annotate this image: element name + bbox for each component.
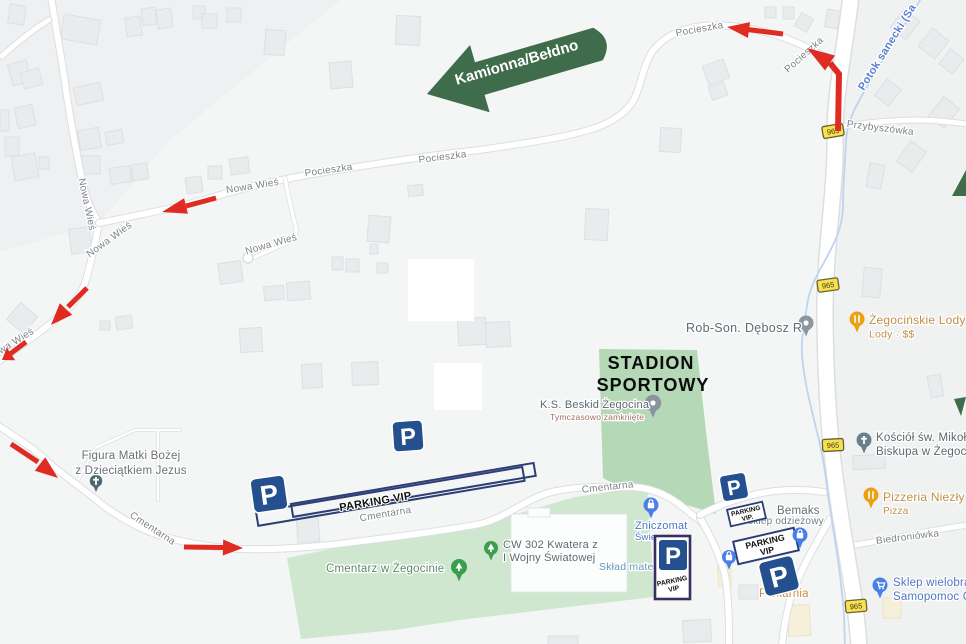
svg-text:P: P	[665, 543, 681, 570]
svg-text:Cmentarz w Żegocinie: Cmentarz w Żegocinie	[326, 562, 444, 575]
svg-text:Samopomoc Ch: Samopomoc Ch	[893, 591, 966, 603]
svg-text:I Wojny Światowej: I Wojny Światowej	[503, 551, 595, 564]
svg-text:Rob-Son. Dębosz R: Rob-Son. Dębosz R	[686, 321, 802, 335]
svg-text:STADION: STADION	[608, 353, 695, 373]
svg-text:Kościół św. Mikołaja: Kościół św. Mikołaja	[876, 432, 966, 444]
svg-text:Pizzeria Niezły Dy: Pizzeria Niezły Dy	[883, 490, 966, 504]
svg-text:965: 965	[849, 601, 862, 611]
svg-text:P: P	[399, 423, 417, 451]
svg-text:Biskupa w Żegocinie: Biskupa w Żegocinie	[876, 445, 966, 458]
svg-text:Figura Matki Bożej: Figura Matki Bożej	[82, 450, 181, 462]
svg-text:Zniczomat: Zniczomat	[635, 520, 688, 532]
svg-text:965: 965	[821, 280, 835, 291]
svg-text:Tymczasowo zamknięte: Tymczasowo zamknięte	[550, 412, 644, 422]
svg-text:Pizza: Pizza	[883, 506, 909, 517]
svg-text:Żegocińskie Lody: Żegocińskie Lody	[869, 313, 966, 327]
svg-text:CW 302 Kwatera z: CW 302 Kwatera z	[503, 539, 598, 551]
svg-text:z Dzieciątkiem Jezus: z Dzieciątkiem Jezus	[75, 465, 186, 477]
svg-text:Sklep wielobran: Sklep wielobran	[893, 577, 966, 589]
svg-text:965: 965	[827, 440, 840, 450]
svg-text:Lody · $$: Lody · $$	[869, 329, 915, 341]
svg-text:SPORTOWY: SPORTOWY	[597, 375, 710, 395]
svg-text:K.S. Beskid Żegocina: K.S. Beskid Żegocina	[540, 398, 650, 411]
